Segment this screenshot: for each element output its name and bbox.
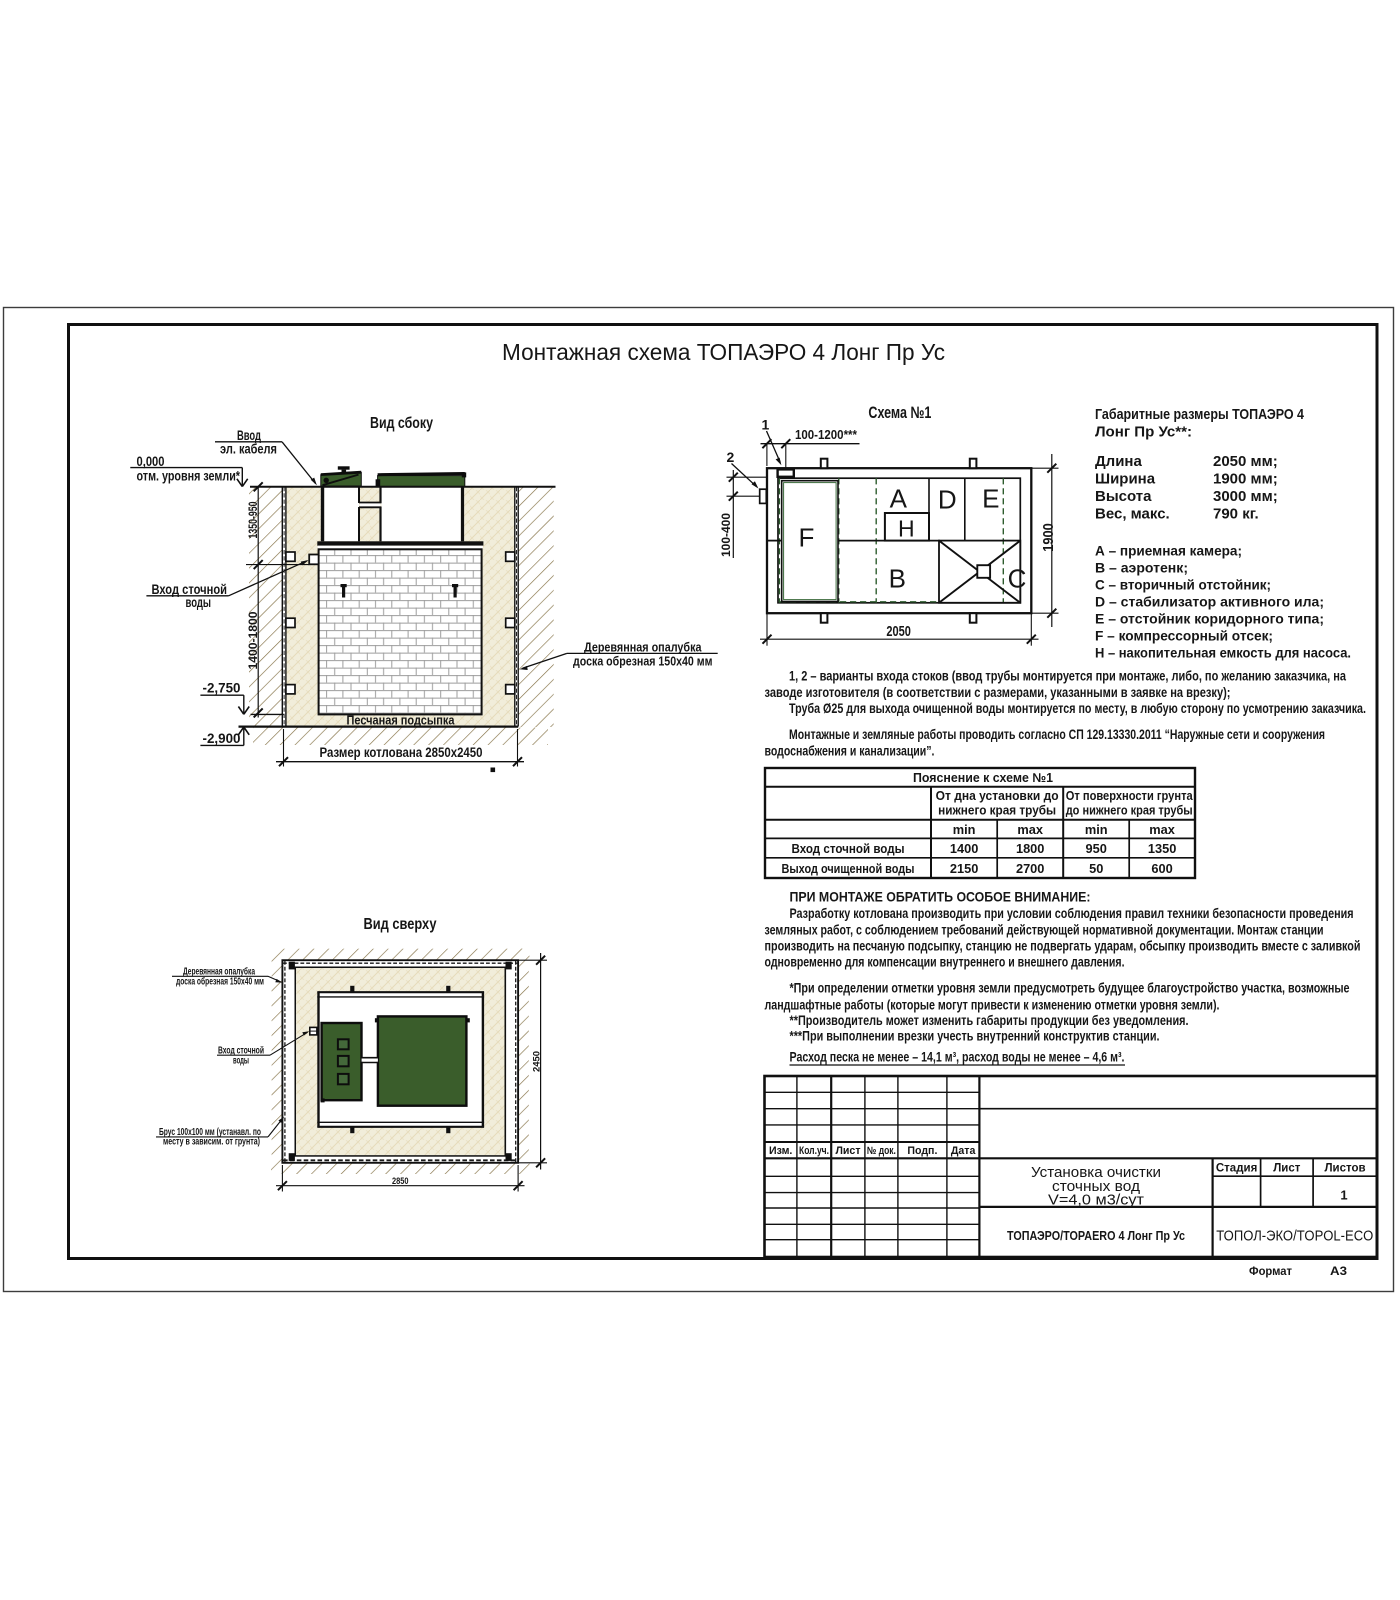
svg-text:1350: 1350: [1148, 841, 1176, 856]
svg-text:Деревянная опалубка: Деревянная опалубка: [584, 640, 702, 655]
svg-text:*При определении отметки уровн: *При определении отметки уровня земли пр…: [790, 980, 1350, 995]
svg-text:воды: воды: [233, 1055, 249, 1066]
svg-text:Вид сверху: Вид сверху: [364, 916, 437, 933]
svg-text:Схема №1: Схема №1: [868, 404, 931, 422]
svg-text:Высота: Высота: [1095, 488, 1152, 505]
svg-text:В – аэротенк;: В – аэротенк;: [1095, 561, 1188, 577]
svg-text:790 кг.: 790 кг.: [1213, 506, 1259, 523]
svg-text:950: 950: [1086, 841, 1107, 856]
svg-text:От дна установки до: От дна установки до: [936, 788, 1059, 803]
svg-text:Листов: Листов: [1324, 1163, 1365, 1175]
svg-text:Пояснение к схеме №1: Пояснение к схеме №1: [913, 770, 1053, 785]
svg-text:Вид сбоку: Вид сбоку: [370, 415, 433, 432]
svg-text:Монтажные и земляные работы пр: Монтажные и земляные работы проводить со…: [789, 727, 1325, 742]
svg-text:ландшафтные работы (которые мо: ландшафтные работы (которые могут привес…: [765, 998, 1220, 1013]
svg-text:1: 1: [1340, 1188, 1347, 1203]
svg-text:D: D: [938, 485, 957, 515]
svg-text:С – вторичный отстойник;: С – вторичный отстойник;: [1095, 578, 1271, 594]
svg-text:Вход сточной воды: Вход сточной воды: [792, 841, 905, 856]
svg-text:Лонг Пр Ус**:: Лонг Пр Ус**:: [1095, 424, 1192, 441]
svg-text:3000 мм;: 3000 мм;: [1213, 488, 1278, 505]
svg-text:1900 мм;: 1900 мм;: [1213, 471, 1278, 488]
svg-text:Выход очищенной воды: Выход очищенной воды: [782, 861, 915, 876]
svg-text:C: C: [1008, 564, 1027, 594]
svg-text:V=4,0 м3/сут: V=4,0 м3/сут: [1048, 1193, 1144, 1209]
svg-text:производить на песчаную подсып: производить на песчаную подсыпку, станци…: [765, 939, 1361, 954]
svg-text:Дата: Дата: [951, 1145, 976, 1157]
svg-text:Расход песка не менее – 14,1 м: Расход песка не менее – 14,1 м³, расход …: [790, 1050, 1125, 1065]
svg-text:воды: воды: [186, 595, 212, 610]
svg-text:H: H: [898, 516, 915, 542]
svg-text:А3: А3: [1330, 1264, 1347, 1278]
svg-text:эл. кабеля: эл. кабеля: [220, 442, 277, 457]
svg-text:Песчаная подсыпка: Песчаная подсыпка: [347, 713, 456, 728]
svg-text:От поверхности грунта: От поверхности грунта: [1066, 788, 1194, 803]
svg-text:H – накопительная емкость для: H – накопительная емкость для насоса.: [1095, 646, 1351, 662]
svg-text:Размер котлована 2850х2450: Размер котлована 2850х2450: [320, 745, 483, 760]
svg-text:Разработку котлована производи: Разработку котлована производить при усл…: [790, 906, 1354, 921]
svg-text:F – компрессорный отсек;: F – компрессорный отсек;: [1095, 629, 1273, 645]
svg-text:2450: 2450: [532, 1051, 543, 1072]
svg-text:100-400: 100-400: [719, 513, 733, 557]
svg-text:до нижнего края трубы: до нижнего края трубы: [1066, 802, 1193, 817]
svg-text:E: E: [982, 484, 999, 514]
svg-text:2700: 2700: [1016, 861, 1044, 876]
svg-text:месту в зависим. от грунта): месту в зависим. от грунта): [163, 1137, 260, 1148]
svg-text:Длина: Длина: [1095, 453, 1142, 470]
svg-text:E – отстойник коридорного типа: E – отстойник коридорного типа;: [1095, 612, 1324, 628]
svg-text:Габаритные размеры ТОПАЭРО 4: Габаритные размеры ТОПАЭРО 4: [1095, 406, 1305, 423]
svg-text:ТОПОЛ-ЭКО/TOPOL-ECO: ТОПОЛ-ЭКО/TOPOL-ECO: [1216, 1228, 1373, 1245]
svg-text:50: 50: [1089, 861, 1103, 876]
svg-text:min: min: [953, 822, 976, 837]
svg-text:заводе изготовителя (в соответ: заводе изготовителя (в соответствии с ра…: [765, 685, 1231, 700]
svg-text:Кол.уч.: Кол.уч.: [799, 1145, 829, 1157]
svg-text:доска обрезная 150х40 мм: доска обрезная 150х40 мм: [176, 975, 264, 987]
svg-text:max: max: [1017, 822, 1043, 837]
svg-text:Труба Ø25 для выхода очищенной: Труба Ø25 для выхода очищенной воды монт…: [789, 701, 1366, 716]
svg-text:Лист: Лист: [835, 1145, 860, 1157]
svg-text:1400-1800: 1400-1800: [248, 612, 260, 670]
svg-text:ТОПАЭРО/TOPAERO 4 Лонг Пр Ус: ТОПАЭРО/TOPAERO 4 Лонг Пр Ус: [1007, 1229, 1185, 1243]
svg-text:A: A: [890, 484, 908, 514]
svg-text:min: min: [1085, 822, 1108, 837]
svg-text:1900: 1900: [1040, 523, 1057, 552]
svg-text:Вес, макс.: Вес, макс.: [1095, 506, 1170, 523]
svg-text:-2,900: -2,900: [203, 731, 241, 746]
svg-text:Стадия: Стадия: [1216, 1163, 1257, 1175]
svg-text:F: F: [799, 523, 815, 553]
svg-text:Подп.: Подп.: [907, 1145, 937, 1157]
svg-text:2050: 2050: [886, 623, 911, 640]
svg-text:B: B: [889, 564, 906, 594]
svg-text:А – приемная камера;: А – приемная камера;: [1095, 544, 1242, 560]
svg-text:-2,750: -2,750: [203, 681, 241, 696]
svg-text:***При выполнении врезки учест: ***При выполнении врезки учесть внутренн…: [790, 1029, 1160, 1044]
svg-text:2: 2: [727, 449, 735, 465]
svg-text:100-1200***: 100-1200***: [795, 427, 858, 442]
svg-text:D – стабилизатор активного ила: D – стабилизатор активного ила;: [1095, 595, 1324, 611]
svg-text:Изм.: Изм.: [769, 1145, 792, 1157]
svg-text:доска обрезная 150х40 мм: доска обрезная 150х40 мм: [573, 654, 713, 669]
svg-text:**Производитель может изменить: **Производитель может изменить габариты …: [790, 1013, 1189, 1028]
svg-text:Лист: Лист: [1273, 1163, 1301, 1175]
svg-text:1350-950: 1350-950: [248, 502, 260, 539]
svg-text:№ док.: № док.: [867, 1145, 896, 1157]
svg-text:Монтажная схема ТОПАЭРО 4 Лонг: Монтажная схема ТОПАЭРО 4 Лонг Пр Ус: [502, 339, 945, 365]
svg-text:1400: 1400: [950, 841, 978, 856]
svg-text:1800: 1800: [1016, 841, 1044, 856]
svg-text:0,000: 0,000: [137, 454, 165, 469]
svg-text:2150: 2150: [950, 861, 978, 876]
svg-text:1, 2 – варианты входа стоков: 1, 2 – варианты входа стоков (ввод трубы…: [789, 669, 1346, 684]
svg-text:1: 1: [762, 417, 770, 433]
svg-text:одновременно для компенсации в: одновременно для компенсации внутреннего…: [765, 955, 1125, 970]
svg-text:max: max: [1149, 822, 1175, 837]
svg-text:2850: 2850: [392, 1176, 409, 1187]
svg-text:600: 600: [1151, 861, 1172, 876]
svg-text:водоснабжения и канализации”.: водоснабжения и канализации”.: [765, 744, 935, 759]
svg-text:земляных работ, с соблюдением: земляных работ, с соблюдением требований…: [765, 923, 1324, 938]
svg-text:Формат: Формат: [1249, 1264, 1292, 1278]
svg-text:Ширина: Ширина: [1095, 471, 1156, 488]
svg-text:ПРИ МОНТАЖЕ ОБРАТИТЬ ОСОБОЕ ВН: ПРИ МОНТАЖЕ ОБРАТИТЬ ОСОБОЕ ВНИМАНИЕ:: [790, 890, 1091, 905]
svg-text:нижнего края трубы: нижнего края трубы: [938, 802, 1056, 817]
svg-text:2050 мм;: 2050 мм;: [1213, 453, 1278, 470]
svg-text:отм. уровня земли*: отм. уровня земли*: [137, 469, 241, 484]
